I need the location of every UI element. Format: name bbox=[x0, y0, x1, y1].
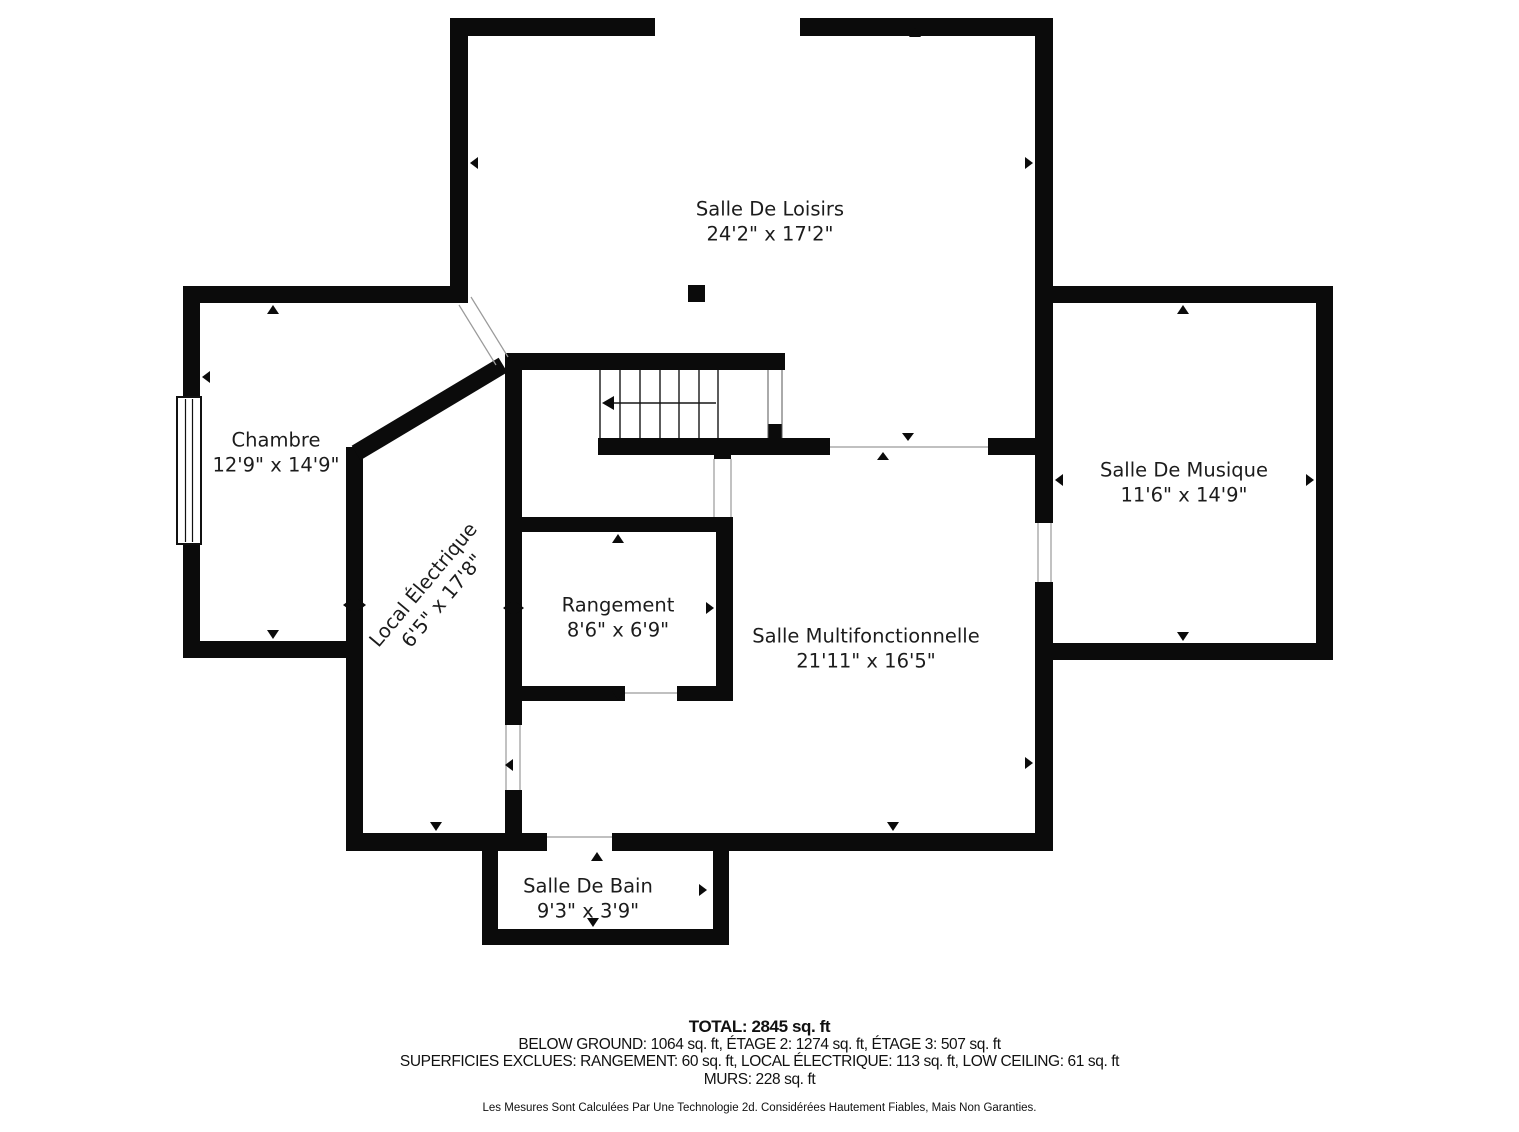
arrow-up bbox=[1177, 305, 1189, 314]
arrow-right bbox=[706, 602, 714, 614]
room-label-chambre: Chambre 12'9" x 14'9" bbox=[212, 428, 339, 479]
room-label-salle-de-bain: Salle De Bain 9'3" x 3'9" bbox=[523, 874, 653, 925]
angled-door-jamb bbox=[459, 305, 496, 365]
wall-rangement-right bbox=[716, 517, 733, 701]
room-name: Rangement bbox=[562, 594, 675, 617]
arrow-right bbox=[699, 884, 707, 896]
floor-plan-drawing bbox=[0, 0, 1519, 1132]
room-name: Salle De Bain bbox=[523, 875, 653, 898]
wall-bottom-seg3 bbox=[612, 833, 1053, 851]
arrow-down bbox=[267, 630, 279, 639]
summary-walls: MURS: 228 sq. ft bbox=[0, 1071, 1519, 1089]
arrow-right bbox=[1306, 474, 1314, 486]
wall-bain-right bbox=[713, 833, 729, 945]
column-post bbox=[688, 285, 705, 302]
wall-musique-top bbox=[1042, 286, 1333, 303]
room-dimensions: 21'11" x 16'5" bbox=[752, 649, 979, 674]
wall-door-right-stub bbox=[988, 438, 1053, 455]
arrow-down bbox=[902, 433, 914, 441]
arrow-down bbox=[430, 822, 442, 831]
wall-bain-bottom bbox=[482, 929, 729, 945]
room-label-salle-de-loisirs: Salle De Loisirs 24'2" x 17'2" bbox=[696, 197, 844, 248]
arrow-up bbox=[267, 305, 279, 314]
room-name: Chambre bbox=[232, 429, 321, 452]
wall-chambre-bottom bbox=[183, 641, 363, 658]
room-label-salle-multifonctionnelle: Salle Multifonctionnelle 21'11" x 16'5" bbox=[752, 624, 979, 675]
summary-floors: BELOW GROUND: 1064 sq. ft, ÉTAGE 2: 1274… bbox=[0, 1036, 1519, 1054]
wall-musique-right bbox=[1316, 286, 1333, 660]
arrow-left bbox=[470, 157, 478, 169]
wall-stairwell-top bbox=[505, 353, 785, 370]
arrow-left bbox=[1055, 474, 1063, 486]
summary-total: TOTAL: 2845 sq. ft bbox=[0, 1017, 1519, 1037]
angled-door-jamb bbox=[471, 297, 508, 357]
disclaimer-text: Les Mesures Sont Calculées Par Une Techn… bbox=[0, 1102, 1519, 1114]
room-name: Salle De Musique bbox=[1100, 459, 1268, 482]
wall-rangement-bottom-left bbox=[505, 686, 625, 701]
wall-chambre-top bbox=[183, 286, 468, 303]
room-name: Salle Multifonctionnelle bbox=[752, 625, 979, 648]
arrow-left bbox=[202, 371, 210, 383]
wall-stub-below-stairs bbox=[714, 450, 731, 459]
arrow-right bbox=[1025, 157, 1033, 169]
wall-corridor-right-upper bbox=[505, 353, 522, 725]
arrow-up bbox=[591, 852, 603, 861]
wall-loisirs-top-right bbox=[800, 18, 1053, 36]
arrow-down bbox=[887, 822, 899, 831]
wall-loisirs-top-left bbox=[450, 18, 655, 36]
arrow-up bbox=[877, 452, 889, 460]
room-dimensions: 12'9" x 14'9" bbox=[212, 453, 339, 478]
room-name: Salle De Loisirs bbox=[696, 198, 844, 221]
door-openings bbox=[459, 297, 1051, 837]
wall-stairwell-cap bbox=[768, 424, 782, 440]
room-dimensions: 8'6" x 6'9" bbox=[562, 618, 675, 643]
arrow-right bbox=[1025, 757, 1033, 769]
staircase bbox=[600, 370, 782, 438]
arrow-up bbox=[612, 534, 624, 543]
room-dimensions: 9'3" x 3'9" bbox=[523, 899, 653, 924]
wall-loisirs-left bbox=[450, 18, 468, 303]
room-label-salle-de-musique: Salle De Musique 11'6" x 14'9" bbox=[1100, 458, 1268, 509]
wall-corridor-left bbox=[346, 447, 363, 851]
stair-direction-arrowhead bbox=[602, 396, 614, 410]
room-dimensions: 24'2" x 17'2" bbox=[696, 222, 844, 247]
wall-diagonal bbox=[356, 365, 503, 453]
wall-musique-bottom bbox=[1042, 643, 1333, 660]
window-frame bbox=[177, 397, 201, 544]
room-label-rangement: Rangement 8'6" x 6'9" bbox=[562, 593, 675, 644]
room-dimensions: 11'6" x 14'9" bbox=[1100, 483, 1268, 508]
window bbox=[177, 397, 201, 544]
floor-plan: Salle De Loisirs 24'2" x 17'2" Chambre 1… bbox=[0, 0, 1519, 1132]
wall-rangement-top bbox=[505, 517, 733, 532]
wall-rangement-bottom-right bbox=[677, 686, 733, 701]
wall-central-right-lower bbox=[1035, 582, 1053, 851]
summary-excluded: SUPERFICIES EXCLUES: RANGEMENT: 60 sq. f… bbox=[0, 1053, 1519, 1071]
wall-bottom-seg1 bbox=[346, 833, 482, 851]
arrow-down bbox=[1177, 632, 1189, 641]
